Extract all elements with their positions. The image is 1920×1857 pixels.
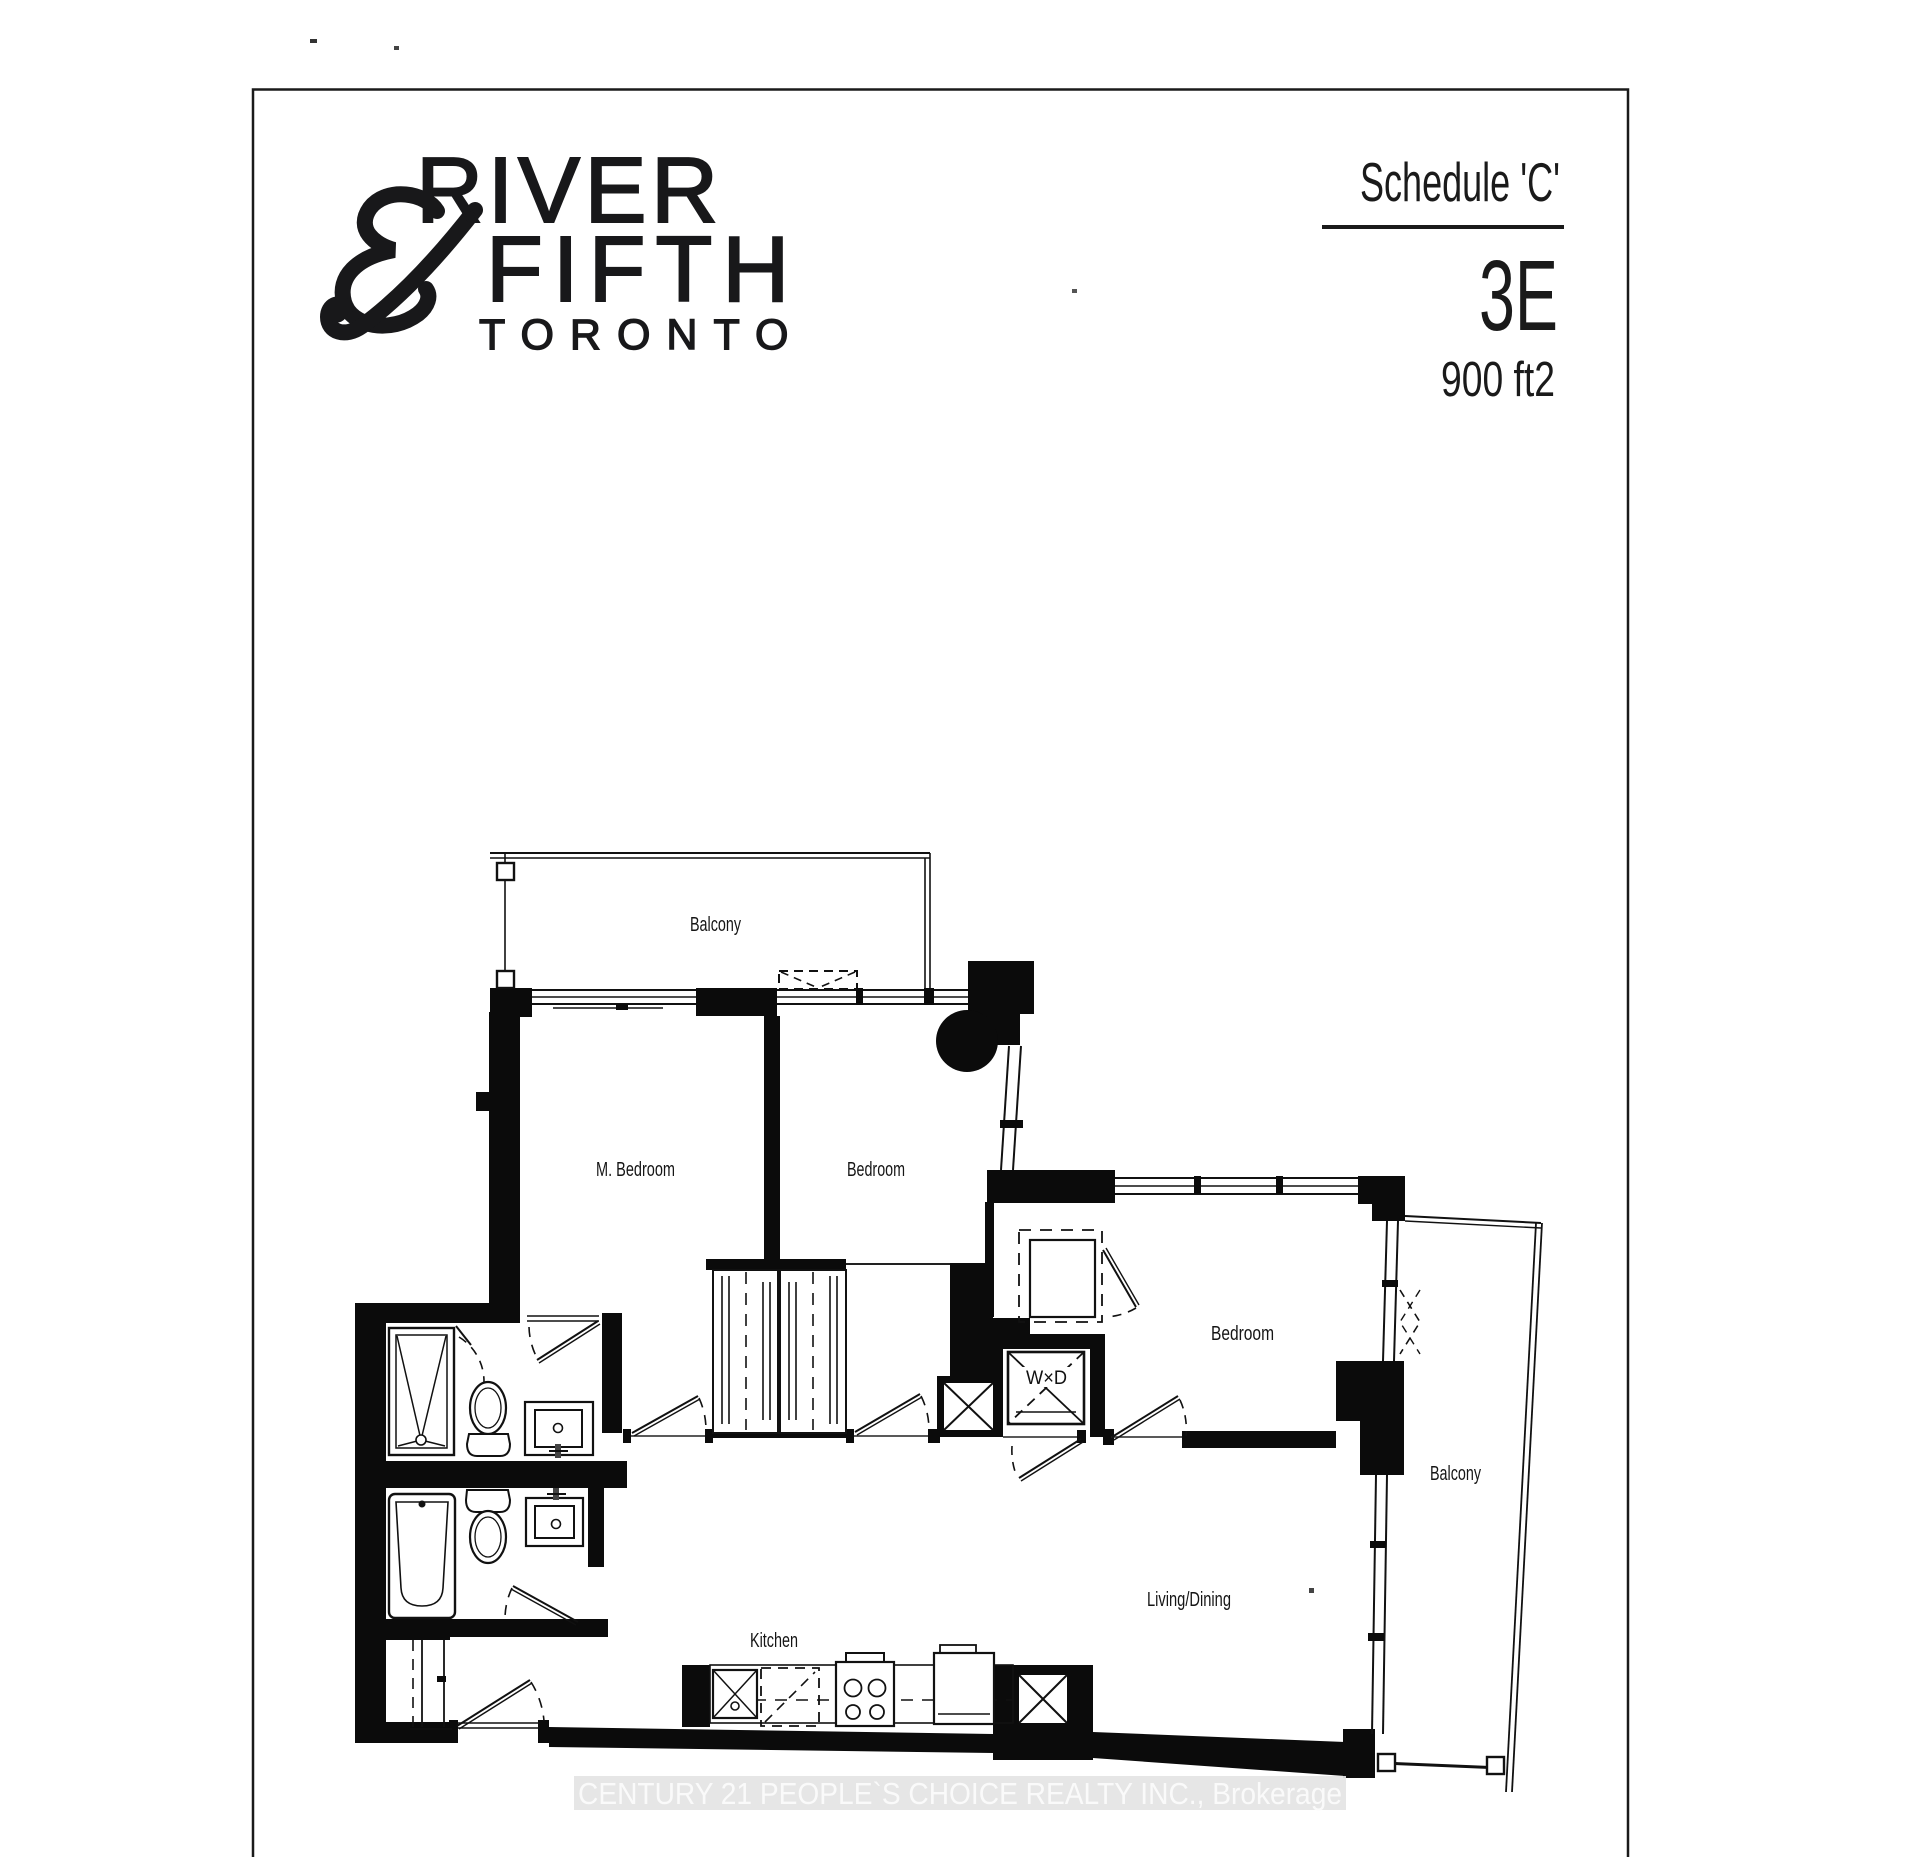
svg-text:3E: 3E [1479, 240, 1558, 352]
svg-text:Living/Dining: Living/Dining [1147, 1589, 1231, 1611]
svg-text:Balcony: Balcony [690, 914, 741, 936]
svg-text:W×D: W×D [1026, 1368, 1067, 1389]
svg-text:CENTURY 21 PEOPLE`S CHOICE REA: CENTURY 21 PEOPLE`S CHOICE REALTY INC., … [578, 1776, 1342, 1811]
svg-text:Bedroom: Bedroom [1211, 1323, 1274, 1345]
svg-text:Balcony: Balcony [1430, 1463, 1481, 1485]
svg-text:M. Bedroom: M. Bedroom [596, 1159, 675, 1181]
svg-text:FIFTH: FIFTH [486, 217, 799, 321]
svg-text:Bedroom: Bedroom [847, 1159, 905, 1181]
svg-text:900 ft2: 900 ft2 [1441, 353, 1555, 407]
svg-text:Kitchen: Kitchen [750, 1630, 798, 1652]
svg-text:TORONTO: TORONTO [479, 311, 804, 359]
svg-text:Schedule 'C': Schedule 'C' [1360, 151, 1560, 213]
